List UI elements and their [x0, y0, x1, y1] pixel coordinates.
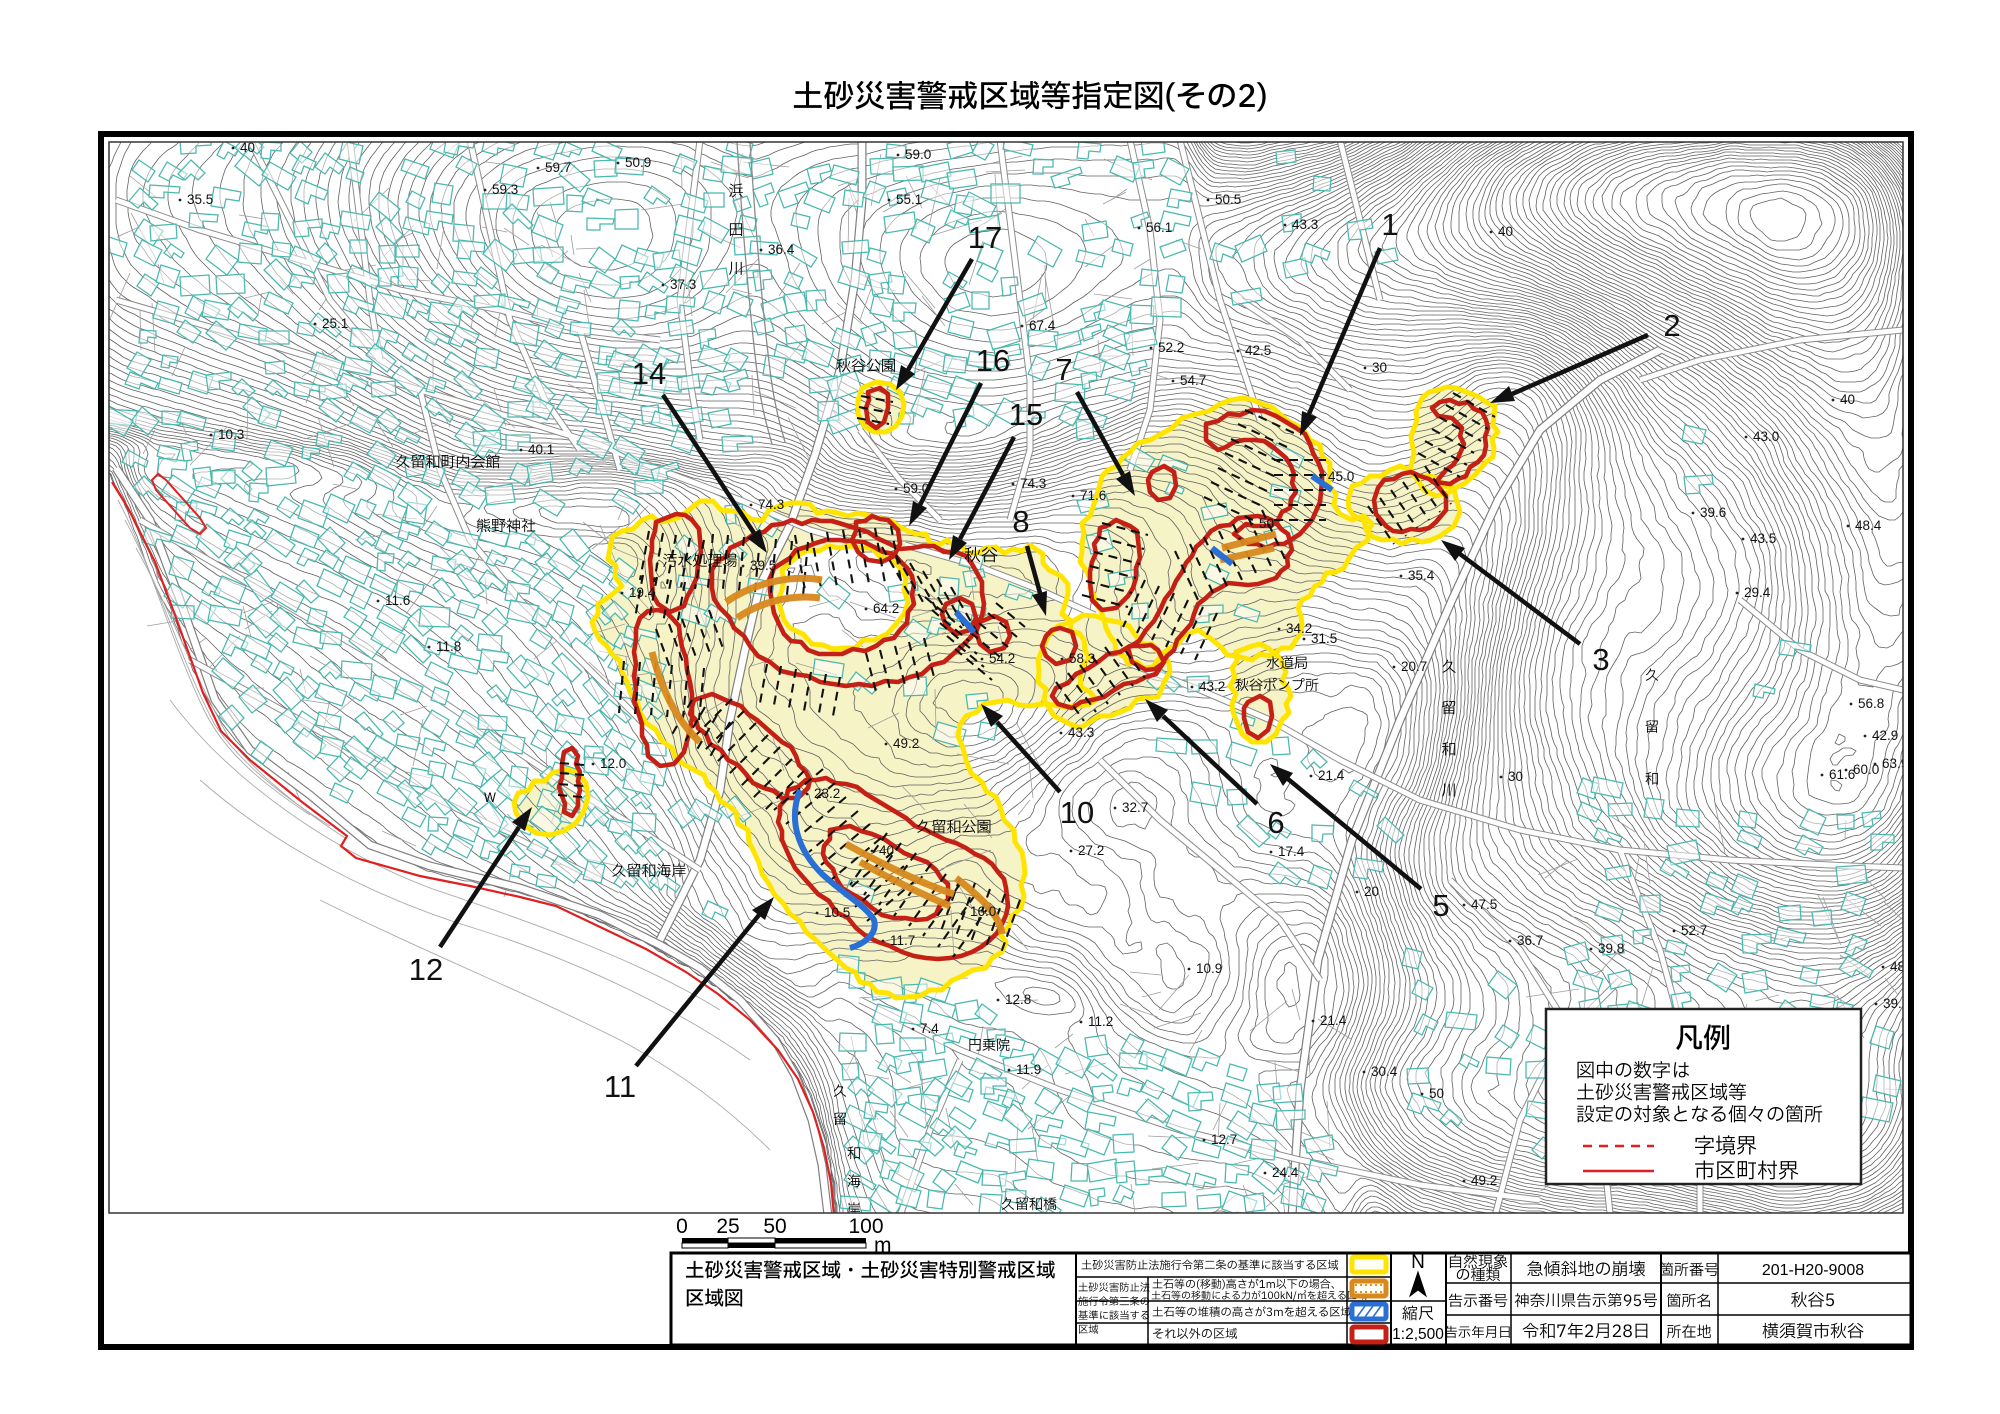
svg-text:43.3: 43.3 [1292, 217, 1318, 232]
svg-text:59.0: 59.0 [905, 147, 931, 162]
svg-text:40: 40 [879, 843, 894, 858]
svg-text:3: 3 [1592, 642, 1609, 677]
svg-text:56.8: 56.8 [1858, 696, 1884, 711]
svg-text:12: 12 [409, 952, 443, 987]
svg-text:16.0: 16.0 [970, 904, 996, 919]
svg-text:52.7: 52.7 [1681, 923, 1707, 938]
svg-text:10.3: 10.3 [218, 427, 244, 442]
svg-text:52.2: 52.2 [1158, 340, 1184, 355]
svg-text:19.4: 19.4 [629, 585, 656, 600]
svg-text:43.3: 43.3 [1068, 725, 1094, 740]
svg-text:25.1: 25.1 [322, 316, 348, 331]
svg-text:11.6: 11.6 [385, 593, 410, 608]
svg-text:20.7: 20.7 [1401, 659, 1427, 674]
svg-text:1: 1 [1381, 207, 1398, 242]
svg-text:11.7: 11.7 [890, 933, 915, 948]
svg-text:45.0: 45.0 [1328, 469, 1354, 484]
svg-text:74.3: 74.3 [1020, 476, 1046, 491]
svg-text:2: 2 [1663, 308, 1680, 343]
svg-text:7: 7 [1055, 352, 1072, 387]
svg-text:47.5: 47.5 [1471, 897, 1497, 912]
svg-text:35.4: 35.4 [1408, 568, 1435, 583]
svg-text:32.7: 32.7 [1122, 800, 1148, 815]
svg-text:40: 40 [1498, 224, 1513, 239]
svg-text:55.1: 55.1 [896, 192, 922, 207]
svg-text:37.3: 37.3 [670, 277, 696, 292]
svg-text:30.4: 30.4 [1371, 1064, 1398, 1079]
svg-text:40: 40 [1840, 392, 1855, 407]
svg-text:43.0: 43.0 [1753, 429, 1779, 444]
svg-text:11.2: 11.2 [1088, 1014, 1113, 1029]
svg-text:21.4: 21.4 [1320, 1013, 1347, 1028]
svg-text:5: 5 [1432, 888, 1449, 923]
svg-text:40.1: 40.1 [528, 442, 554, 457]
svg-text:17: 17 [968, 220, 1002, 255]
svg-text:N: N [1411, 1252, 1425, 1273]
svg-text:71.6: 71.6 [1080, 488, 1106, 503]
svg-text:11.8: 11.8 [436, 639, 461, 654]
svg-text:36.4: 36.4 [768, 242, 795, 257]
svg-text:12.8: 12.8 [1005, 992, 1031, 1007]
svg-text:29.4: 29.4 [1744, 585, 1771, 600]
svg-text:23.2: 23.2 [814, 786, 840, 801]
svg-text:10: 10 [1060, 795, 1094, 830]
svg-text:48.4: 48.4 [1855, 518, 1882, 533]
svg-text:49.2: 49.2 [893, 736, 919, 751]
svg-text:39.6: 39.6 [1700, 505, 1726, 520]
svg-text:74.3: 74.3 [758, 497, 784, 512]
svg-text:58.3: 58.3 [1069, 651, 1095, 666]
svg-text:54.7: 54.7 [1180, 373, 1206, 388]
svg-text:30: 30 [1372, 360, 1387, 375]
svg-text:10.9: 10.9 [1196, 961, 1222, 976]
svg-text:50: 50 [763, 1215, 786, 1238]
svg-text:59.3: 59.3 [492, 182, 518, 197]
svg-text:67.4: 67.4 [1029, 318, 1056, 333]
svg-text:31.5: 31.5 [1311, 631, 1337, 646]
svg-text:64.2: 64.2 [873, 601, 899, 616]
svg-text:39.8: 39.8 [1598, 941, 1624, 956]
svg-text:39.5: 39.5 [750, 558, 776, 573]
svg-text:54.2: 54.2 [989, 651, 1015, 666]
svg-text:201-H20-9008: 201-H20-9008 [1762, 1262, 1864, 1279]
svg-text:30: 30 [1508, 769, 1523, 784]
svg-text:12.7: 12.7 [1211, 1132, 1237, 1147]
svg-text:59.7: 59.7 [545, 160, 571, 175]
svg-text:50.5: 50.5 [1215, 192, 1241, 207]
svg-text:43.2: 43.2 [1199, 679, 1225, 694]
svg-text:50: 50 [1429, 1086, 1444, 1101]
svg-text:11.9: 11.9 [1016, 1062, 1041, 1077]
svg-text:43.5: 43.5 [1750, 531, 1776, 546]
svg-text:11: 11 [604, 1069, 636, 1104]
svg-text:12.0: 12.0 [600, 756, 626, 771]
svg-text:25: 25 [716, 1215, 739, 1238]
svg-text:10.5: 10.5 [824, 905, 850, 920]
svg-text:21.4: 21.4 [1318, 768, 1345, 783]
svg-text:42.5: 42.5 [1245, 343, 1271, 358]
svg-text:20: 20 [1364, 884, 1379, 899]
svg-text:50.9: 50.9 [625, 155, 651, 170]
svg-text:56.1: 56.1 [1146, 220, 1172, 235]
svg-text:14: 14 [632, 356, 666, 391]
svg-text:27.2: 27.2 [1078, 843, 1104, 858]
svg-text:8: 8 [1012, 504, 1029, 539]
svg-text:15: 15 [1009, 397, 1043, 432]
svg-text:35.5: 35.5 [187, 192, 213, 207]
svg-text:16: 16 [976, 343, 1010, 378]
svg-text:61.6: 61.6 [1829, 767, 1855, 782]
svg-text:49.2: 49.2 [1471, 1173, 1497, 1188]
svg-text:36.7: 36.7 [1517, 933, 1543, 948]
svg-text:34.2: 34.2 [1286, 621, 1312, 636]
svg-text:7.4: 7.4 [920, 1021, 939, 1036]
svg-text:6: 6 [1267, 805, 1284, 840]
svg-text:42.9: 42.9 [1872, 728, 1898, 743]
svg-text:50: 50 [1259, 516, 1274, 531]
svg-text:1:2,500: 1:2,500 [1392, 1326, 1444, 1343]
svg-text:0: 0 [676, 1215, 688, 1238]
svg-text:17.4: 17.4 [1278, 844, 1305, 859]
svg-text:24.4: 24.4 [1272, 1165, 1299, 1180]
